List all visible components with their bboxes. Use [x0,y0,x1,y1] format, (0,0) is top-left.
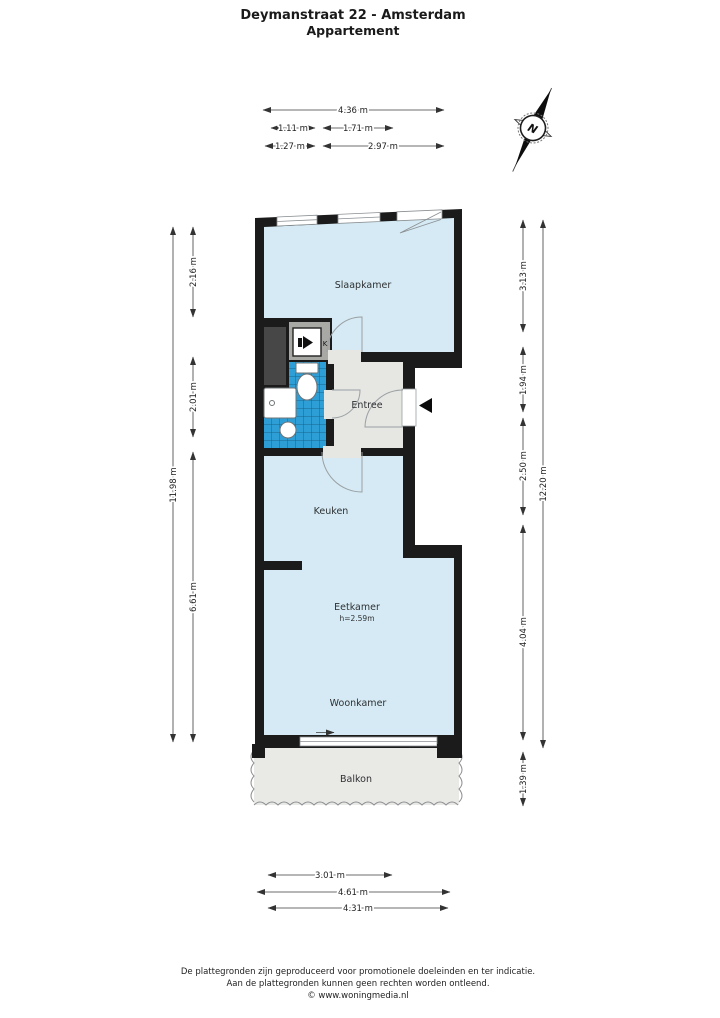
shower-drain [270,401,275,406]
boiler-glyph-bar [298,338,302,347]
dimensions-bottom: 3.01 m 4.61 m 4.31 m [257,871,450,914]
entrance-arrow [419,398,432,413]
label-woonkamer: Woonkamer [330,698,387,709]
compass-rose: N [495,80,570,180]
toilet-tank [296,363,318,373]
shaft [264,327,286,385]
room-living-floor [264,456,454,735]
label-entree: Entree [351,400,382,411]
toilet-bowl [297,374,317,400]
floor-plan: Slaapkamer Entree Keuken Eetkamer h=2.59… [0,0,720,1018]
page-footer: De plattegronden zijn geproduceerd voor … [0,966,716,1002]
footer-line-2: Aan de plattegronden kunnen geen rechten… [0,978,716,990]
label-balkon: Balkon [340,774,372,785]
front-door-opening [402,389,416,426]
dim-label-right-total: 12.20 m [539,466,549,501]
dimensions-right: 3.13 m 1.94 m 2.50 m 4.04 m 1.39 m 12.20… [519,220,549,806]
doorway-badkamer [324,390,336,419]
dim-label-left-b: 2.01 m [189,382,199,412]
balkon-wall-stub-right [437,744,462,758]
label-slaapkamer: Slaapkamer [335,280,392,291]
dim-label-top-total: 4.36 m [338,106,368,116]
dim-label-right-d: 4.04 m [519,617,529,647]
label-keuken: Keuken [314,506,349,517]
dim-label-left-total: 11.98 m [169,467,179,502]
label-eetkamer-height: h=2.59m [339,614,374,623]
kast-unit [293,328,321,356]
label-eetkamer: Eetkamer [334,602,380,613]
dimensions-left: 11.98 m 2.16 m 2.01 m 6.61 m [169,227,199,742]
label-kast: K [323,340,328,348]
dim-label-left-c: 6.61 m [189,582,199,612]
dim-label-bottom-a: 3.01 m [315,871,345,881]
doorway-slaapkamer [328,350,361,364]
washbasin [280,422,296,438]
dim-label-right-c: 2.50 m [519,451,529,481]
dim-label-bottom-c: 4.31 m [343,904,373,914]
dim-label-top-b: 1.71 m [343,124,373,134]
dim-label-left-a: 2.16 m [189,257,199,287]
doorway-keuken [323,446,361,458]
balkon-wall-stub-left [252,744,265,758]
dim-label-top-d: 2.97 m [368,142,398,152]
dim-label-top-a: 1.11 m [278,124,308,134]
footer-line-3: © www.woningmedia.nl [0,990,716,1002]
floorplan-page: Deymanstraat 22 - Amsterdam Appartement [0,0,720,1018]
dim-label-right-a: 3.13 m [519,261,529,291]
shower-tray [264,388,296,418]
dim-label-right-e: 1.39 m [519,764,529,794]
dim-label-top-c: 1.27 m [275,142,305,152]
wall-stub-keuken-eetkamer [258,561,302,570]
dim-label-right-b: 1.94 m [519,365,529,395]
footer-line-1: De plattegronden zijn geproduceerd voor … [0,966,716,978]
dim-label-bottom-b: 4.61 m [338,888,368,898]
dimensions-top: 4.36 m 1.11 m 1.71 m 1.27 m 2.97 m [263,106,444,152]
